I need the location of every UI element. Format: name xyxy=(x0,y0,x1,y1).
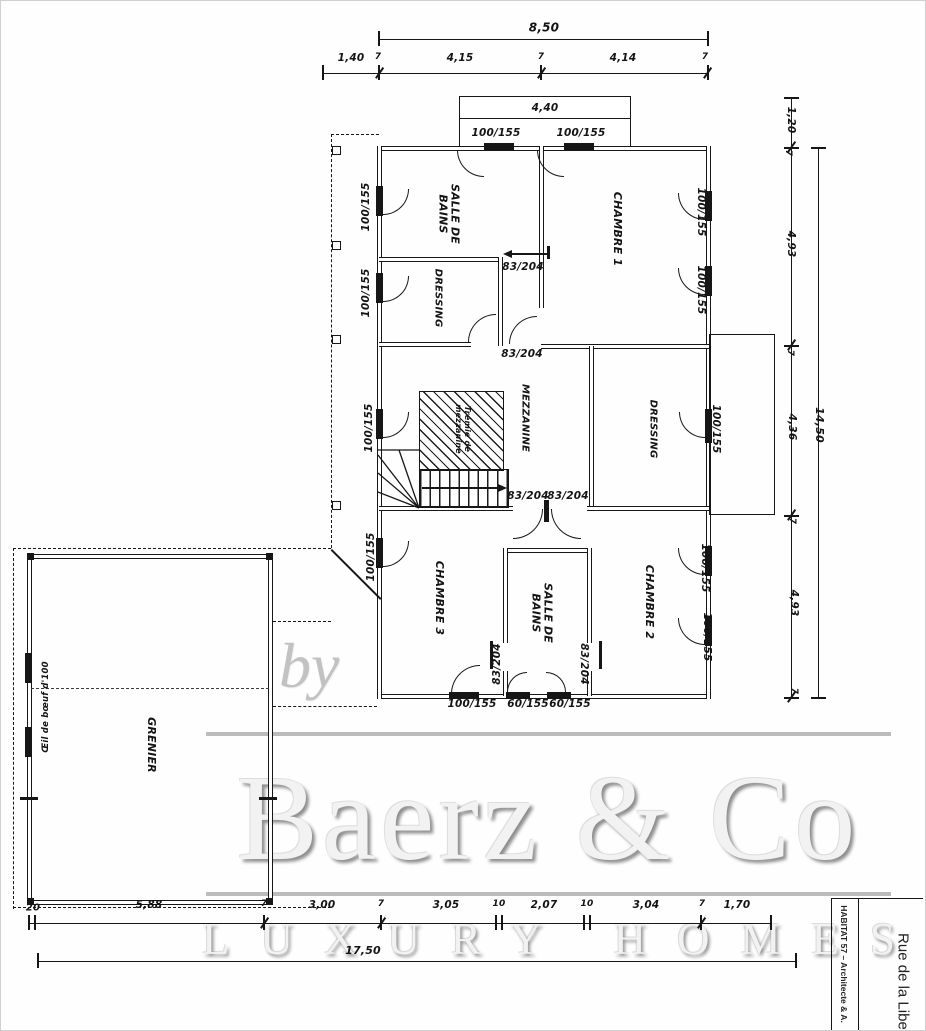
dimension-label: 7 xyxy=(785,350,795,356)
drawing-layer: HABITAT 57 – Architecte & A. Rue de la L… xyxy=(1,1,925,1030)
dimension-labels: 8,501,4074,1574,1474,401,2074,9374,3674,… xyxy=(1,1,925,1030)
dimension-label: 10 xyxy=(581,899,594,909)
floor-plan-scan: by Baerz & Co LUXURY HOMES xyxy=(0,0,926,1031)
dimension-label: 4,14 xyxy=(610,53,637,65)
dimension-label: 3,00 xyxy=(309,900,336,912)
dimension-label: 7 xyxy=(702,52,708,62)
dimension-label: 2,07 xyxy=(531,900,558,912)
dimension-label: 4,36 xyxy=(785,414,797,441)
dimension-label: 4,40 xyxy=(532,103,559,115)
dimension-label: 3,05 xyxy=(433,900,460,912)
dimension-label: 7 xyxy=(789,688,799,694)
dimension-label: 7 xyxy=(375,52,381,62)
dimension-label: 5,88 xyxy=(136,900,163,912)
dimension-label: 4,15 xyxy=(447,53,474,65)
dimension-label: 7 xyxy=(787,518,797,524)
dimension-label: 4,93 xyxy=(787,590,799,617)
dimension-label: 4,93 xyxy=(784,231,796,258)
dimension-label: 7 xyxy=(261,899,267,909)
dimension-label: 10 xyxy=(493,899,506,909)
dimension-label: 1,20 xyxy=(784,107,796,134)
dimension-label: 7 xyxy=(699,899,705,909)
dimension-label: 20 xyxy=(26,902,40,913)
dimension-label: 14,50 xyxy=(813,407,825,443)
dimension-label: 7 xyxy=(783,150,793,156)
dimension-label: 8,50 xyxy=(529,21,559,34)
dimension-label: 7 xyxy=(378,899,384,909)
dimension-label: 3,04 xyxy=(633,900,660,912)
dimension-label: 1,40 xyxy=(338,53,365,65)
dimension-label: 7 xyxy=(538,52,544,62)
dimension-label: 1,70 xyxy=(724,900,751,912)
dimension-label: 17,50 xyxy=(345,945,381,957)
